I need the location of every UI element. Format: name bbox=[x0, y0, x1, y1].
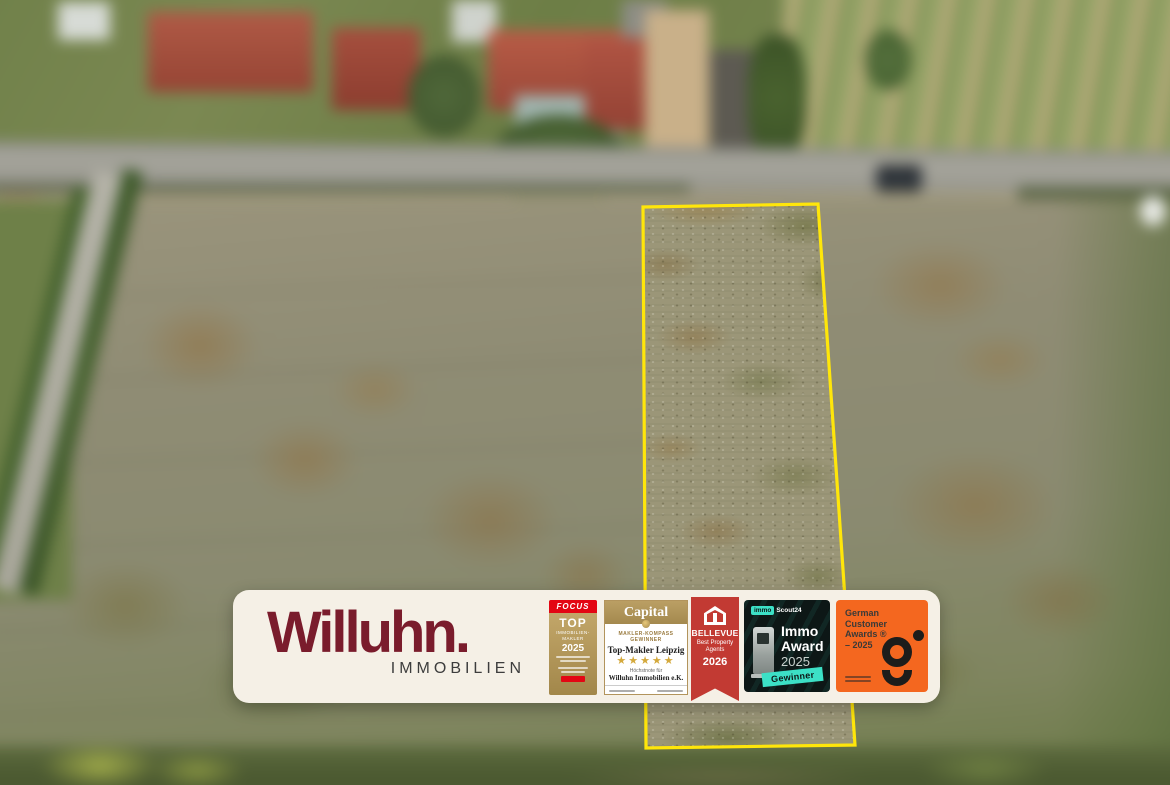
capital-footer bbox=[605, 685, 687, 695]
bellevue-line2: Agents bbox=[691, 647, 739, 654]
illegible-text-bar bbox=[558, 667, 588, 669]
capital-headline: Top-Makler Leipzig bbox=[605, 645, 687, 655]
badge-german-customer-awards: German Customer Awards ® – 2025 bbox=[836, 600, 928, 692]
illegible-text-bar bbox=[556, 656, 590, 658]
immo-award-text: Immo Award 2025 bbox=[781, 624, 824, 669]
badge-immoscout24-immo-award: immo Scout24 Immo Award 2025 Gewinner bbox=[744, 600, 830, 692]
gca-logo-ring bbox=[882, 637, 912, 667]
watermark-banner: Willuhn. IMMOBILIEN FOCUS TOP IMMOBILIEN… bbox=[233, 590, 940, 703]
aerial-photo: Willuhn. IMMOBILIEN FOCUS TOP IMMOBILIEN… bbox=[0, 0, 1170, 785]
focus-mini-logo bbox=[561, 676, 585, 682]
house-icon-chimney bbox=[713, 613, 717, 625]
house-icon bbox=[704, 606, 726, 625]
gca-logo-arc bbox=[882, 670, 912, 686]
bellevue-line1: Best Property bbox=[691, 640, 739, 647]
gca-text: German Customer Awards ® – 2025 bbox=[845, 608, 887, 650]
capital-emblem-icon bbox=[642, 620, 650, 628]
illegible-text-bar bbox=[845, 674, 871, 684]
focus-logo: FOCUS bbox=[549, 600, 597, 613]
focus-year: 2025 bbox=[549, 643, 597, 654]
immo-award-line2: Award bbox=[781, 639, 824, 654]
gca-line1: German bbox=[845, 608, 887, 619]
illegible-text-bar bbox=[560, 660, 586, 662]
immoscout24-logo: immo Scout24 bbox=[751, 606, 802, 615]
badge-bellevue-best-property-agents: BELLEVUE Best Property Agents 2026 bbox=[691, 597, 739, 701]
focus-line2: MAKLER bbox=[549, 636, 597, 642]
bellevue-title: BELLEVUE bbox=[691, 628, 739, 638]
gca-line2: Customer bbox=[845, 619, 887, 630]
capital-kicker2: GEWINNER bbox=[605, 637, 687, 643]
immo-chip: immo bbox=[751, 606, 774, 615]
gca-line3: Awards ® bbox=[845, 629, 887, 640]
gca-line4: – 2025 bbox=[845, 640, 887, 651]
gca-g-logo-icon bbox=[882, 630, 924, 686]
brand-wordmark: Willuhn. bbox=[267, 602, 529, 664]
capital-kicker: MAKLER-KOMPASS GEWINNER bbox=[605, 631, 687, 643]
award-trophy-icon bbox=[753, 627, 774, 674]
bellevue-year: 2026 bbox=[691, 656, 739, 668]
immo-award-line1: Immo bbox=[781, 624, 824, 639]
focus-top-label: TOP bbox=[549, 616, 597, 630]
illegible-text-bar bbox=[561, 671, 585, 673]
five-stars-icon: ★★★★★ bbox=[605, 655, 687, 667]
scout24-label: Scout24 bbox=[776, 607, 801, 614]
illegible-text-bar bbox=[609, 688, 635, 695]
brand-logo: Willuhn. IMMOBILIEN bbox=[267, 602, 529, 678]
capital-title: Capital bbox=[624, 605, 668, 620]
capital-logo: Capital bbox=[605, 601, 687, 624]
capital-company: Willuhn Immobilien e.K. bbox=[605, 674, 687, 682]
gca-logo-dot bbox=[913, 630, 924, 641]
badge-capital-makler-kompass: Capital MAKLER-KOMPASS GEWINNER Top-Makl… bbox=[604, 600, 688, 695]
badge-focus-top-makler: FOCUS TOP IMMOBILIEN- MAKLER 2025 bbox=[549, 600, 597, 695]
illegible-text-bar bbox=[657, 688, 683, 695]
